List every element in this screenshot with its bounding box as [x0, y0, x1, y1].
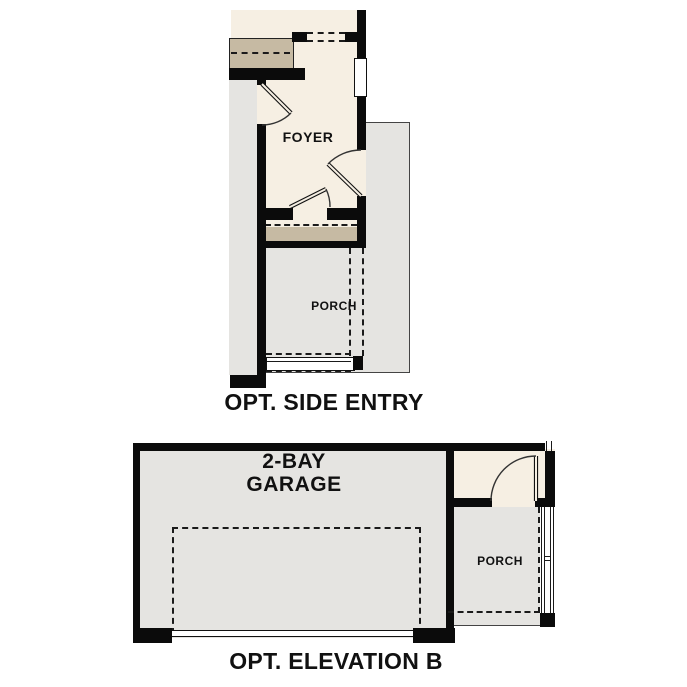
wall-top-stub-right: [345, 32, 357, 42]
wall2-garage-right: [446, 443, 454, 643]
side-entry-title: OPT. SIDE ENTRY: [174, 389, 474, 416]
step-side-post: [353, 356, 363, 370]
wall-top-stub-left: [292, 32, 307, 42]
garage-door: [172, 630, 413, 637]
elevation-b-title: OPT. ELEVATION B: [186, 648, 486, 675]
corner-window-line-2: [551, 441, 552, 451]
wall2-left: [133, 443, 140, 628]
wall-left-stub: [257, 80, 266, 85]
corner-window-line-1: [546, 441, 547, 451]
steps-dash-upper: [266, 353, 351, 355]
porch2-corner-post: [540, 613, 555, 627]
porch-steps: [266, 357, 355, 371]
wall-foyer-bottom-right: [327, 208, 366, 220]
stairs-center-dash: [231, 52, 290, 54]
left-walkway: [229, 78, 257, 375]
wall-porch-top: [263, 241, 366, 248]
wall2-entry-bottom-right: [535, 498, 555, 507]
porch2-screen-line-4: [553, 507, 554, 613]
wall2-entry-right: [545, 451, 555, 498]
opening-dash-lower: [307, 40, 345, 42]
foyer-label: FOYER: [258, 129, 358, 145]
step-divider: [267, 361, 351, 362]
floor-plan-canvas: FOYER PORCH OPT. SIDE ENTRY: [0, 0, 687, 687]
wall-left-main: [257, 124, 266, 375]
block-bottom-right: [413, 628, 455, 643]
porch2-dash-bottom: [448, 611, 540, 613]
porch2-label: PORCH: [450, 554, 550, 568]
landing-dash: [265, 224, 357, 226]
wall2-entry-bottom-left: [446, 498, 492, 507]
garage-door-dash-rect: [172, 527, 421, 634]
wall-foyer-bottom-left: [257, 208, 293, 220]
opening-dash-upper: [307, 32, 345, 34]
wall-foot-block: [230, 375, 266, 388]
wall-right-mid: [357, 95, 366, 150]
foyer-window: [354, 58, 367, 97]
block-bottom-left: [133, 628, 172, 643]
driveway-gap: [172, 638, 413, 643]
porch-label: PORCH: [284, 299, 384, 313]
wall-right-upper: [357, 10, 366, 58]
stoop-landing: [265, 227, 357, 241]
wall-stairs-bottom: [229, 68, 305, 80]
porch2-screen-line-3: [550, 507, 551, 613]
garage-label: 2-BAY GARAGE: [238, 450, 350, 496]
